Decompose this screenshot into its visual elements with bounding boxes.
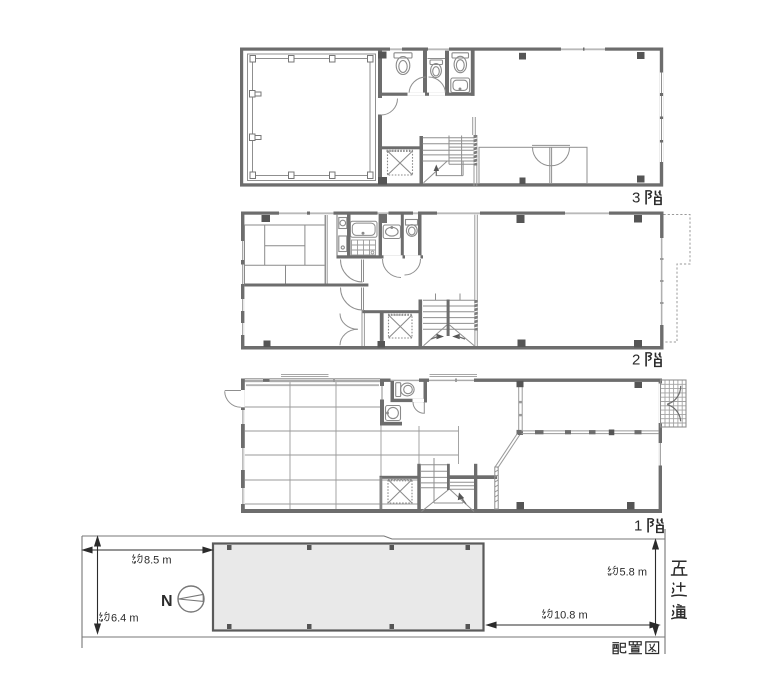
svg-text:2: 2 <box>632 352 640 369</box>
svg-text:10.8 m: 10.8 m <box>554 610 588 622</box>
svg-text:3: 3 <box>632 190 640 207</box>
svg-text:8.5 m: 8.5 m <box>144 555 172 567</box>
svg-text:6.4 m: 6.4 m <box>111 613 139 625</box>
svg-text:1: 1 <box>634 518 642 535</box>
svg-text:N: N <box>161 593 173 610</box>
svg-text:5.8 m: 5.8 m <box>620 567 648 579</box>
